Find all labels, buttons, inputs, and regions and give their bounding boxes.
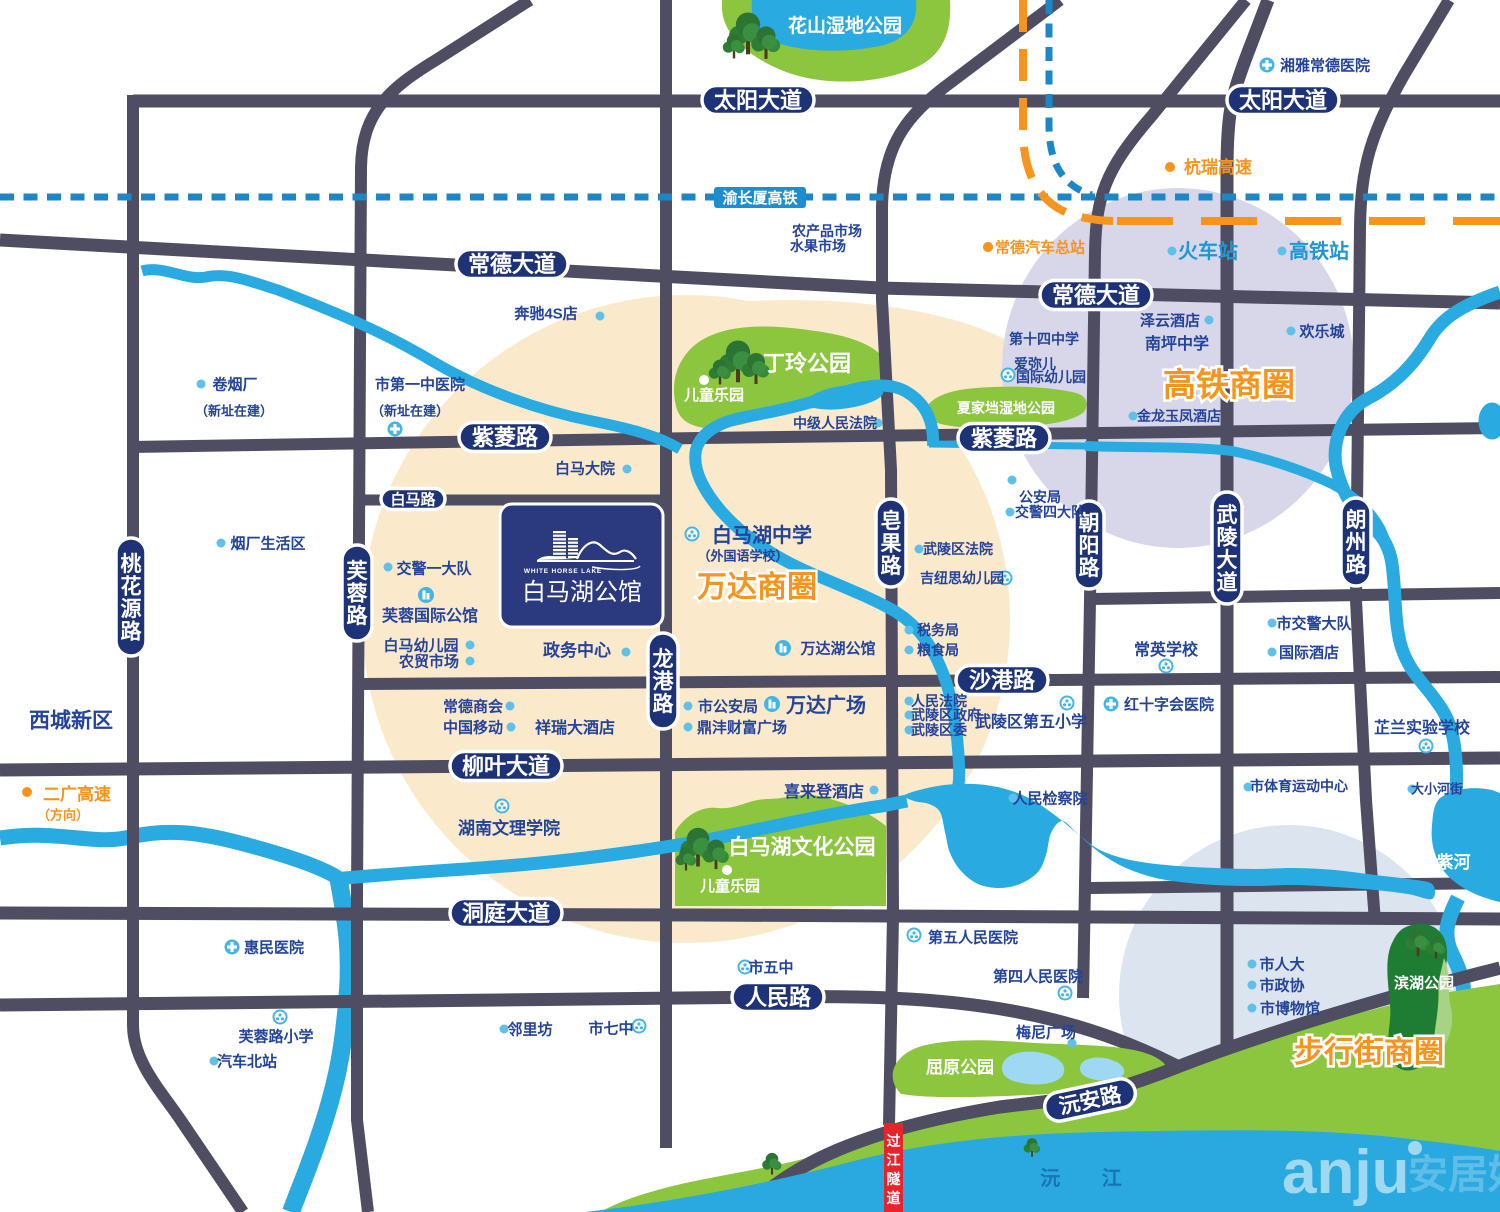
svg-text:花山湿地公园: 花山湿地公园 [788, 14, 902, 37]
svg-text:柳叶大道: 柳叶大道 [462, 754, 550, 779]
svg-text:洞庭大道: 洞庭大道 [462, 901, 550, 926]
svg-text:泽云酒店: 泽云酒店 [1140, 311, 1200, 329]
svg-text:屈原公园: 屈原公园 [926, 1058, 994, 1077]
svg-text:丁玲公园: 丁玲公园 [763, 351, 851, 376]
svg-text:（新址在建）: （新址在建） [371, 404, 449, 419]
svg-text:anju: anju [1282, 1138, 1409, 1207]
svg-text:芙蓉国际公馆: 芙蓉国际公馆 [382, 606, 478, 625]
svg-text:沅 江: 沅 江 [1040, 1167, 1140, 1190]
svg-text:皂: 皂 [881, 510, 902, 533]
svg-text:白马湖文化公园: 白马湖文化公园 [729, 835, 876, 859]
svg-text:万达湖公馆: 万达湖公馆 [799, 639, 875, 657]
svg-text:州: 州 [1346, 532, 1367, 555]
svg-text:（方向）: （方向） [37, 808, 89, 823]
svg-text:高铁商圈: 高铁商圈 [1163, 366, 1295, 403]
svg-text:喜来登酒店: 喜来登酒店 [784, 782, 864, 801]
svg-text:人民路: 人民路 [745, 985, 812, 1010]
svg-text:路: 路 [881, 554, 903, 578]
svg-text:路: 路 [121, 619, 143, 643]
svg-text:源: 源 [121, 598, 142, 621]
svg-text:国际幼儿园: 国际幼儿园 [1016, 369, 1086, 385]
svg-text:芙: 芙 [347, 560, 369, 583]
svg-text:（新址在建）: （新址在建） [195, 404, 273, 419]
svg-text:市交警大队: 市交警大队 [1276, 614, 1352, 632]
svg-text:果: 果 [881, 533, 902, 556]
svg-text:粮食局: 粮食局 [917, 642, 959, 658]
svg-text:武陵区第五小学: 武陵区第五小学 [975, 712, 1087, 731]
svg-text:惠民医院: 惠民医院 [244, 938, 304, 956]
svg-text:农贸市场: 农贸市场 [398, 652, 459, 670]
svg-text:市体育运动中心: 市体育运动中心 [1250, 778, 1348, 794]
svg-text:路: 路 [1079, 556, 1101, 580]
svg-text:第四人民医院: 第四人民医院 [993, 967, 1083, 985]
svg-text:大小河街: 大小河街 [1411, 782, 1463, 797]
svg-text:大: 大 [1217, 549, 1238, 572]
svg-text:白马湖公馆: 白马湖公馆 [522, 579, 642, 606]
svg-text:江: 江 [887, 1152, 901, 1168]
svg-text:太阳大道: 太阳大道 [714, 88, 802, 113]
svg-text:第十四中学: 第十四中学 [1009, 331, 1079, 347]
svg-text:儿童乐园: 儿童乐园 [683, 386, 744, 404]
svg-text:道: 道 [1217, 570, 1238, 594]
svg-text:龙: 龙 [653, 647, 674, 671]
svg-text:水果市场: 水果市场 [790, 238, 846, 254]
svg-text:陵: 陵 [1217, 526, 1239, 549]
svg-text:武陵区政府: 武陵区政府 [911, 707, 981, 723]
svg-text:紫菱路: 紫菱路 [472, 425, 539, 450]
svg-text:武陵区委: 武陵区委 [911, 722, 967, 738]
svg-text:常英学校: 常英学校 [1134, 640, 1199, 659]
svg-text:花: 花 [121, 574, 142, 598]
svg-text:万达广场: 万达广场 [785, 693, 866, 717]
svg-text:常德大道: 常德大道 [468, 252, 556, 277]
svg-text:步行街商圈: 步行街商圈 [1294, 1036, 1444, 1069]
svg-text:桃: 桃 [121, 552, 142, 576]
svg-text:安居好房: 安居好房 [1408, 1153, 1500, 1197]
svg-text:西城新区: 西城新区 [29, 709, 113, 733]
svg-text:吉纽思幼儿园: 吉纽思幼儿园 [920, 570, 1004, 586]
svg-text:芙蓉路小学: 芙蓉路小学 [237, 1027, 313, 1045]
svg-text:火车站: 火车站 [1178, 239, 1238, 263]
svg-text:湖南文理学院: 湖南文理学院 [458, 818, 560, 838]
svg-text:WHITE HORSE LAKE: WHITE HORSE LAKE [524, 568, 602, 575]
svg-text:阳: 阳 [1079, 535, 1100, 558]
svg-text:蓉: 蓉 [347, 582, 368, 606]
svg-text:常德大道: 常德大道 [1052, 283, 1140, 308]
svg-text:港: 港 [653, 670, 675, 694]
svg-text:白马湖中学: 白马湖中学 [712, 523, 812, 547]
svg-text:公安局: 公安局 [1019, 489, 1061, 505]
svg-text:红十字会医院: 红十字会医院 [1124, 695, 1214, 713]
svg-text:沙港路: 沙港路 [969, 668, 1036, 693]
svg-text:二广高速: 二广高速 [43, 784, 111, 804]
svg-text:市博物馆: 市博物馆 [1260, 999, 1320, 1017]
svg-text:太阳大道: 太阳大道 [1239, 88, 1327, 113]
svg-text:紫菱路: 紫菱路 [971, 426, 1038, 451]
svg-text:邻里坊: 邻里坊 [506, 1020, 552, 1038]
svg-text:中国移动: 中国移动 [443, 718, 503, 736]
svg-text:祥瑞大酒店: 祥瑞大酒店 [535, 718, 615, 737]
svg-text:朗: 朗 [1346, 509, 1367, 532]
svg-text:市七中: 市七中 [588, 1019, 633, 1037]
svg-text:路: 路 [653, 692, 675, 716]
svg-text:（外国语学校）: （外国语学校） [697, 549, 788, 564]
svg-text:杭瑞高速: 杭瑞高速 [1184, 157, 1252, 177]
svg-text:路: 路 [347, 604, 369, 628]
svg-text:国际酒店: 国际酒店 [1279, 643, 1339, 661]
svg-text:过: 过 [887, 1133, 901, 1149]
svg-text:芷兰实验学校: 芷兰实验学校 [1374, 718, 1471, 737]
svg-text:市人大: 市人大 [1259, 955, 1304, 973]
svg-text:武: 武 [1217, 504, 1238, 527]
svg-text:金龙玉凤酒店: 金龙玉凤酒店 [1136, 408, 1221, 424]
svg-text:中级人民法院: 中级人民法院 [793, 415, 877, 431]
svg-text:卷烟厂: 卷烟厂 [211, 375, 257, 393]
svg-text:市第一中医院: 市第一中医院 [375, 375, 465, 393]
svg-text:常德商会: 常德商会 [443, 697, 503, 715]
svg-text:欢乐城: 欢乐城 [1298, 322, 1344, 340]
svg-text:隧: 隧 [887, 1171, 901, 1187]
svg-text:税务局: 税务局 [917, 622, 959, 638]
svg-text:儿童乐园: 儿童乐园 [699, 877, 760, 895]
svg-text:交警四大队: 交警四大队 [1015, 504, 1086, 520]
svg-text:市公安局: 市公安局 [698, 697, 758, 715]
svg-text:渝长厦高铁: 渝长厦高铁 [722, 189, 797, 207]
svg-text:路: 路 [1346, 553, 1368, 577]
svg-text:梅尼广场: 梅尼广场 [1016, 1023, 1076, 1041]
svg-text:汽车北站: 汽车北站 [217, 1052, 277, 1070]
svg-text:烟厂生活区: 烟厂生活区 [230, 534, 305, 552]
svg-text:白马大院: 白马大院 [555, 459, 615, 477]
svg-text:人民检察院: 人民检察院 [1012, 789, 1087, 807]
svg-text:交警一大队: 交警一大队 [396, 559, 472, 577]
svg-text:农产品市场: 农产品市场 [791, 223, 862, 239]
svg-text:湘雅常德医院: 湘雅常德医院 [1280, 56, 1370, 74]
svg-text:第五人民医院: 第五人民医院 [928, 928, 1018, 946]
svg-text:鼎沣财富广场: 鼎沣财富广场 [697, 718, 787, 736]
svg-text:奔驰4S店: 奔驰4S店 [513, 304, 577, 322]
svg-text:滨湖公园: 滨湖公园 [1394, 974, 1454, 992]
svg-text:万达商圈: 万达商圈 [697, 571, 817, 604]
svg-text:政务中心: 政务中心 [543, 640, 611, 660]
svg-text:高铁站: 高铁站 [1289, 239, 1349, 263]
svg-text:夏家垱湿地公园: 夏家垱湿地公园 [957, 400, 1055, 416]
svg-text:白马幼儿园: 白马幼儿园 [383, 636, 458, 654]
svg-text:道: 道 [887, 1190, 901, 1206]
svg-text:武陵区法院: 武陵区法院 [923, 541, 993, 557]
svg-text:市五中: 市五中 [748, 958, 793, 976]
svg-text:白马路: 白马路 [390, 490, 436, 508]
svg-text:穿紫河: 穿紫河 [1420, 852, 1471, 872]
svg-text:常德汽车总站: 常德汽车总站 [995, 238, 1085, 256]
svg-text:南坪中学: 南坪中学 [1145, 334, 1209, 353]
svg-text:市政协: 市政协 [1259, 976, 1304, 994]
